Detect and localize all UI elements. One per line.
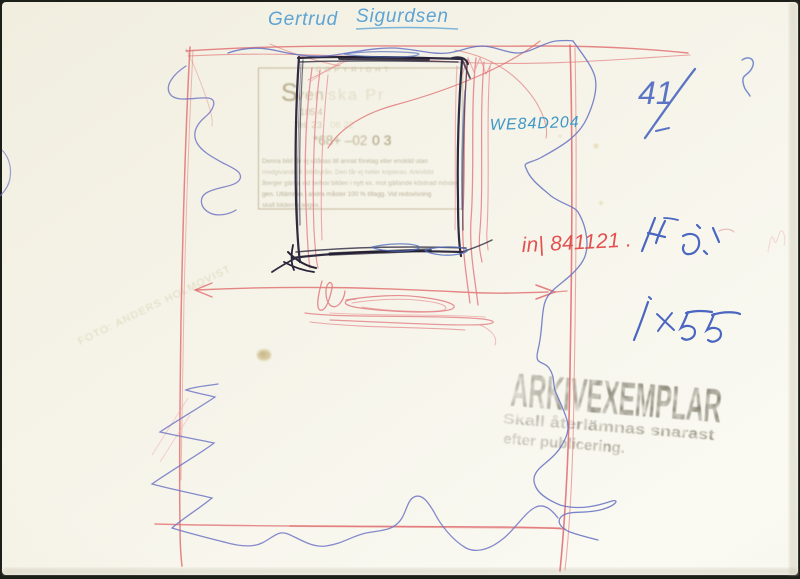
svg-text:ven: ven <box>296 87 325 104</box>
svg-text:WE84D204: WE84D204 <box>490 114 580 134</box>
svg-text:skall bilderna anges.: skall bilderna anges. <box>262 202 320 209</box>
svg-text:*68+ –02: *68+ –02 <box>313 133 367 148</box>
svg-text:ska Pr: ska Pr <box>328 87 385 104</box>
svg-text:medgivande fr. bildbyrån. Den: medgivande fr. bildbyrån. Den får ej hel… <box>262 168 434 176</box>
svg-text:105 4: 105 4 <box>300 107 323 117</box>
svg-text:0 3: 0 3 <box>372 132 392 148</box>
svg-text:återger gärna vid behov bilden: återger gärna vid behov bilden i nytt ex… <box>262 179 459 187</box>
svg-text:Sigurdsen: Sigurdsen <box>356 6 449 27</box>
svg-text:Gertrud: Gertrud <box>268 9 339 30</box>
svg-text:Denna bild får ej utlånas till: Denna bild får ej utlånas till annat för… <box>262 157 428 165</box>
svg-text:gen. Utlämnas i andra måster 1: gen. Utlämnas i andra måster 100 % tilla… <box>262 190 432 198</box>
